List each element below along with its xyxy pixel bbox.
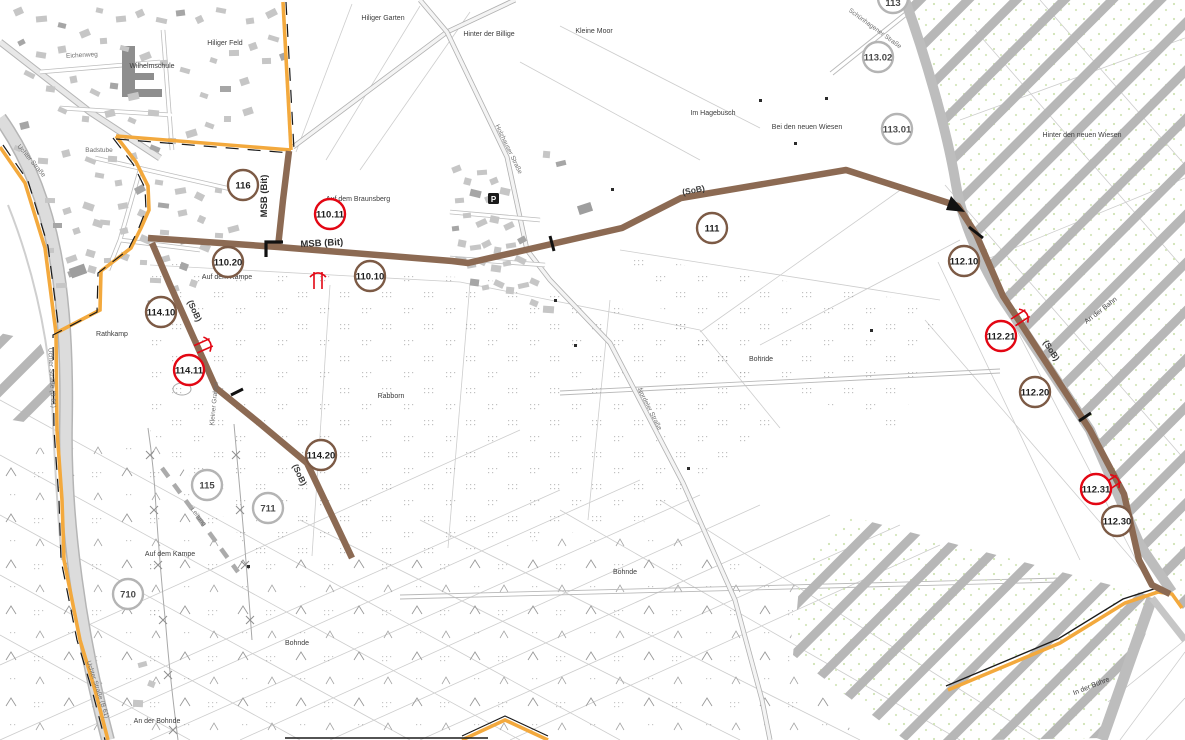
building <box>543 306 554 314</box>
parcel-badge-113.02: 113.02 <box>863 42 893 72</box>
badge-number: 113 <box>885 0 900 9</box>
parcel-badge-115: 115 <box>192 470 222 500</box>
badge-number: 114.20 <box>307 451 336 462</box>
place-label: Hinter der Billige <box>463 31 514 38</box>
building <box>220 86 231 92</box>
building <box>215 233 223 239</box>
building <box>110 83 119 90</box>
building <box>46 85 56 92</box>
badge-number: 112.21 <box>987 332 1016 343</box>
parcel-badge-114.11: 114.11 <box>174 355 204 385</box>
parcel-badge-711: 711 <box>253 493 283 523</box>
building <box>69 75 77 83</box>
building <box>506 287 515 295</box>
place-label: Hinter den neuen Wiesen <box>1043 132 1122 139</box>
badge-number: 710 <box>120 590 136 601</box>
place-label: Bohnde <box>285 640 309 647</box>
building <box>116 15 127 22</box>
building <box>56 283 67 289</box>
badge-number: 110.20 <box>214 258 243 269</box>
place-label: Auf dem Kampe <box>145 551 195 558</box>
parcel-badge-113.01: 113.01 <box>882 114 912 144</box>
place-label: Bohnde <box>749 356 773 363</box>
route-label: MSB (Bit) <box>259 175 270 218</box>
building <box>45 198 55 203</box>
place-label: Kleine Moor <box>575 28 613 35</box>
badge-number: 110.10 <box>356 272 385 283</box>
map-canvas: P Hiliger FeldHiliger GartenHinter der B… <box>0 0 1185 740</box>
parcel-badge-110.20: 110.20 <box>213 247 243 277</box>
building <box>246 17 255 24</box>
building <box>229 50 239 56</box>
parcel-badge-114.20: 114.20 <box>306 440 336 470</box>
building <box>160 230 169 236</box>
building <box>148 110 159 117</box>
place-label: Im Hagebusch <box>690 110 735 117</box>
building <box>452 226 460 232</box>
parcel-badge-110.10: 110.10 <box>355 261 385 291</box>
parcel-badge-112.20: 112.20 <box>1020 377 1050 407</box>
building <box>491 264 502 272</box>
place-label: Badstube <box>85 147 113 154</box>
parcel-badge-112.21: 112.21 <box>986 321 1016 351</box>
place-label: Bohnde <box>613 569 637 576</box>
badge-number: 112.20 <box>1021 388 1050 399</box>
badge-number: 116 <box>235 181 250 192</box>
building <box>140 260 147 265</box>
place-label: Rathkamp <box>96 331 128 338</box>
place-label: An der Bohnde <box>134 718 181 725</box>
parcel-badge-112.30: 112.30 <box>1102 506 1132 536</box>
badge-number: 115 <box>199 481 215 492</box>
parcel-badge-110.11: 110.11 <box>315 199 345 229</box>
badge-number: 112.10 <box>950 257 979 268</box>
building <box>477 170 487 176</box>
place-label: Hiliger Garten <box>361 15 404 22</box>
badge-number: 112.31 <box>1082 485 1111 496</box>
route-label: MSB (Bit) <box>300 237 343 250</box>
svg-text:P: P <box>491 195 497 204</box>
building <box>457 239 466 247</box>
badge-number: 114.10 <box>147 308 176 319</box>
building <box>463 213 471 219</box>
badge-number: 113.01 <box>883 125 912 136</box>
place-label: Hiliger Feld <box>207 40 243 47</box>
place-label: Rabborn <box>378 393 405 400</box>
building <box>36 16 47 23</box>
place-label: Bei den neuen Wiesen <box>772 124 843 131</box>
building <box>150 278 161 283</box>
parking-icon: P <box>488 193 499 204</box>
building <box>543 151 551 159</box>
badge-number: 111 <box>705 224 721 235</box>
parcel-badge-112.10: 112.10 <box>949 246 979 276</box>
badge-number: 711 <box>260 504 276 515</box>
building <box>262 58 271 64</box>
badge-number: 110.11 <box>316 210 345 221</box>
building <box>215 188 223 194</box>
parcel-badge-710: 710 <box>113 579 143 609</box>
parcel-badge-111: 111 <box>697 213 727 243</box>
building <box>53 223 62 228</box>
parcel-badge-114.10: 114.10 <box>146 297 176 327</box>
building <box>176 9 186 16</box>
building <box>82 116 90 123</box>
cadastral-plan-map: P Hiliger FeldHiliger GartenHinter der B… <box>0 0 1185 740</box>
building <box>108 156 117 162</box>
building <box>100 38 107 44</box>
place-label: Wilhelmschule <box>129 63 174 70</box>
parcel-badge-116: 116 <box>228 170 258 200</box>
badge-number: 112.30 <box>1103 517 1132 528</box>
building <box>115 179 123 186</box>
building <box>455 198 464 204</box>
badge-number: 114.11 <box>175 366 204 377</box>
building <box>133 700 143 708</box>
badge-number: 113.02 <box>864 53 893 64</box>
parcel-badge-112.31: 112.31 <box>1081 474 1111 504</box>
building <box>38 158 48 165</box>
building <box>470 278 480 286</box>
building <box>224 116 231 122</box>
